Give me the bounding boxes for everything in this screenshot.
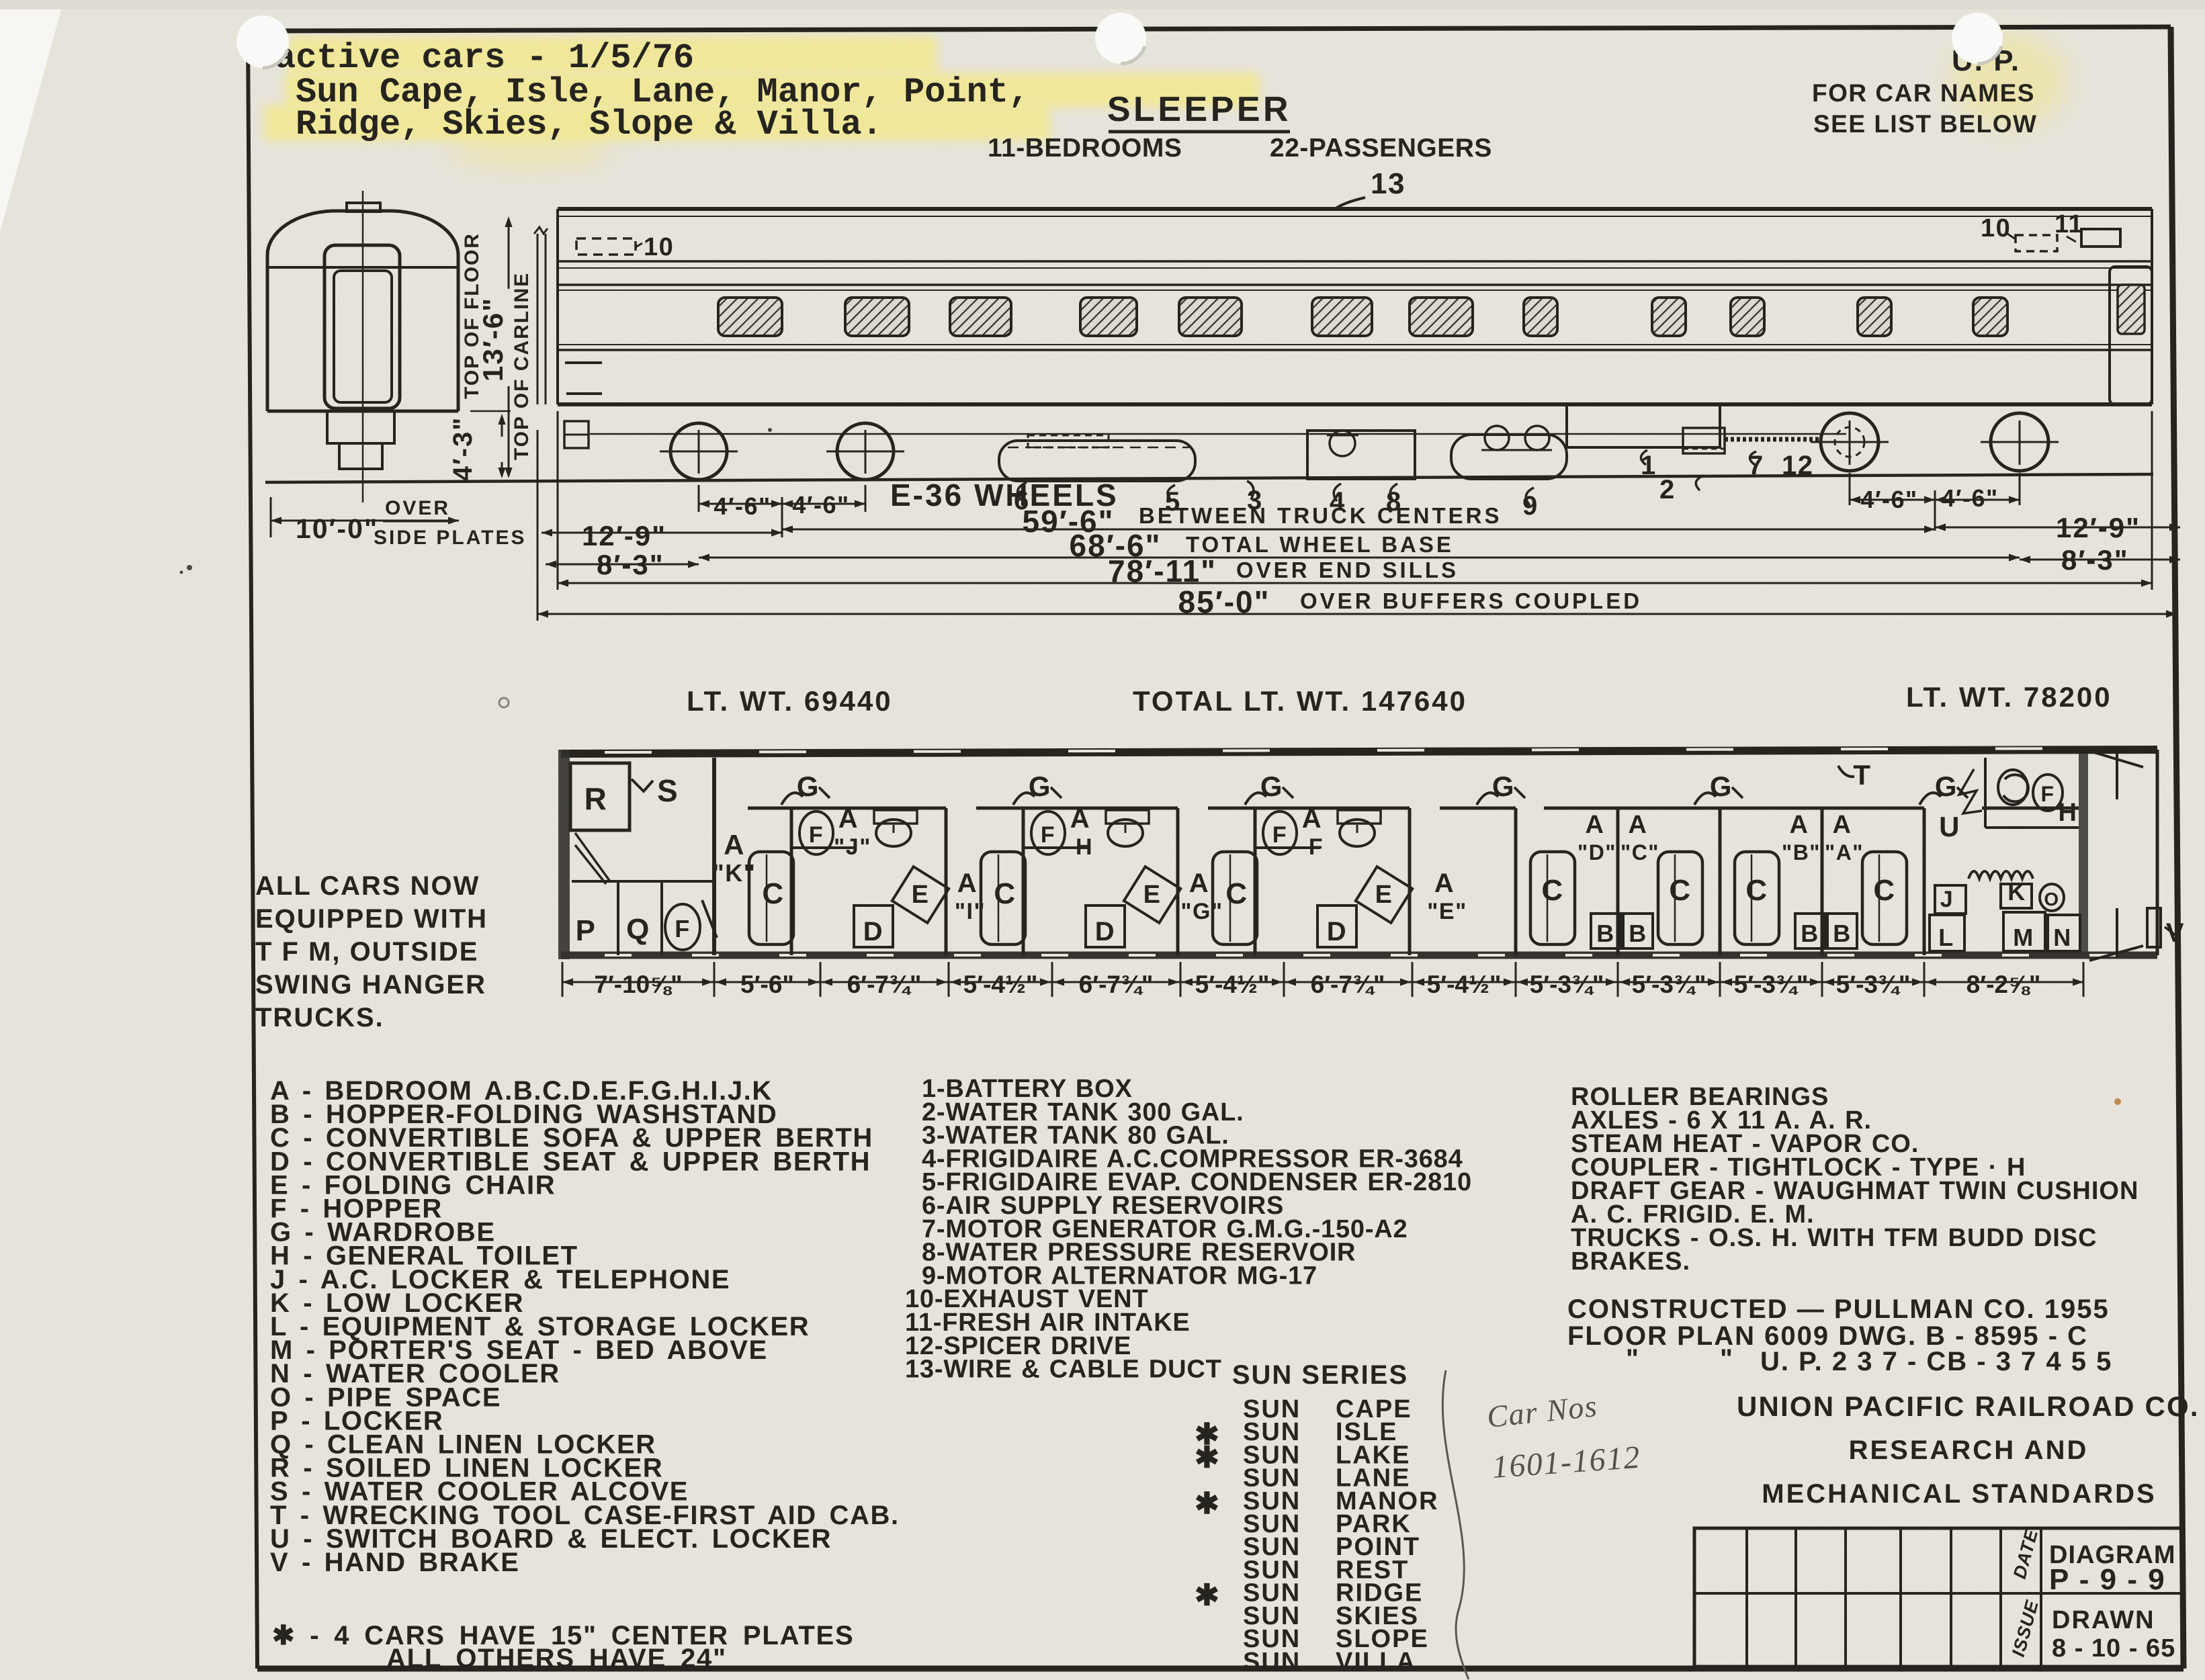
svg-text:A: A xyxy=(1629,811,1648,839)
svg-text:TOP OF CARLINE: TOP OF CARLINE xyxy=(511,272,533,460)
svg-text:A: A xyxy=(1189,869,1209,898)
svg-text:E: E xyxy=(1143,881,1162,909)
svg-text:13′-6": 13′-6" xyxy=(477,297,509,382)
svg-text:C: C xyxy=(1873,874,1895,907)
svg-text:A: A xyxy=(724,829,745,860)
svg-text:"G": "G" xyxy=(1180,899,1223,924)
svg-text:11: 11 xyxy=(2055,210,2083,238)
svg-text:2: 2 xyxy=(1659,475,1676,504)
svg-text:5′-3¾": 5′-3¾" xyxy=(1836,971,1911,998)
svg-text:22-PASSENGERS: 22-PASSENGERS xyxy=(1270,134,1492,163)
svg-text:10′-0": 10′-0" xyxy=(296,513,378,544)
svg-text:": " xyxy=(1626,1344,1639,1374)
svg-text:4′-6": 4′-6" xyxy=(792,491,849,519)
svg-text:12′-9": 12′-9" xyxy=(2056,512,2141,543)
svg-text:G: G xyxy=(1492,770,1515,802)
svg-text:Q: Q xyxy=(626,913,650,946)
svg-text:U: U xyxy=(1939,811,1960,842)
svg-text:D: D xyxy=(1095,917,1115,946)
svg-text:E: E xyxy=(1375,881,1393,909)
svg-text:S: S xyxy=(657,773,679,808)
svg-text:✱: ✱ xyxy=(1195,1487,1220,1520)
svg-text:R: R xyxy=(585,781,608,816)
svg-text:H: H xyxy=(1076,834,1093,860)
svg-text:5′-4½": 5′-4½" xyxy=(963,971,1038,998)
svg-text:8′-3": 8′-3" xyxy=(597,549,664,580)
svg-text:TOTAL LT. WT. 147640: TOTAL LT. WT. 147640 xyxy=(1133,685,1467,717)
svg-text:SUN SERIES: SUN SERIES xyxy=(1232,1360,1408,1390)
svg-text:85′-0": 85′-0" xyxy=(1178,584,1270,619)
svg-text:5′-4½": 5′-4½" xyxy=(1427,971,1502,998)
svg-text:TOTAL WHEEL BASE: TOTAL WHEEL BASE xyxy=(1186,532,1454,557)
svg-text:": " xyxy=(1720,1344,1733,1374)
svg-text:A: A xyxy=(1070,804,1090,834)
svg-text:V - HAND BRAKE: V - HAND BRAKE xyxy=(270,1548,520,1577)
svg-text:P - 9 - 9: P - 9 - 9 xyxy=(2049,1563,2166,1596)
svg-text:8′-3": 8′-3" xyxy=(2061,544,2129,576)
svg-text:F: F xyxy=(1272,822,1287,848)
svg-text:A: A xyxy=(1790,811,1809,839)
svg-text:B: B xyxy=(1801,920,1819,947)
svg-text:ALL OTHERS HAVE 24": ALL OTHERS HAVE 24" xyxy=(386,1644,727,1673)
svg-text:G: G xyxy=(1710,770,1733,802)
svg-text:ALL CARS NOW: ALL CARS NOW xyxy=(255,871,480,901)
svg-text:8 - 10 - 65: 8 - 10 - 65 xyxy=(2052,1634,2175,1663)
svg-text:E: E xyxy=(912,881,930,909)
svg-text:C: C xyxy=(762,877,784,910)
svg-text:B: B xyxy=(1596,920,1615,947)
svg-text:B: B xyxy=(1629,920,1647,947)
svg-text:✱: ✱ xyxy=(1195,1441,1220,1474)
svg-text:"E": "E" xyxy=(1427,899,1467,924)
svg-text:F: F xyxy=(675,915,691,942)
svg-text:A: A xyxy=(838,804,859,834)
svg-text:SUN: SUN xyxy=(1243,1648,1301,1676)
svg-text:6′-7¾": 6′-7¾" xyxy=(1079,971,1154,998)
svg-text:SEE LIST BELOW: SEE LIST BELOW xyxy=(1813,110,2037,138)
svg-text:78′-11": 78′-11" xyxy=(1108,554,1217,588)
svg-text:LT. WT. 78200: LT. WT. 78200 xyxy=(1906,681,2112,713)
svg-text:G: G xyxy=(797,770,820,802)
svg-text:✱: ✱ xyxy=(1195,1579,1220,1612)
svg-text:A: A xyxy=(1302,804,1322,834)
svg-text:4′-6": 4′-6" xyxy=(1860,486,1917,513)
svg-text:6′-7¾": 6′-7¾" xyxy=(847,971,922,998)
svg-text:11-BEDROOMS: 11-BEDROOMS xyxy=(988,134,1182,163)
svg-text:4′-6": 4′-6" xyxy=(714,492,771,520)
svg-text:Ridge, Skies, Slope & Villa.: Ridge, Skies, Slope & Villa. xyxy=(296,105,883,144)
svg-text:"A": "A" xyxy=(1825,840,1864,865)
svg-text:EQUIPPED WITH: EQUIPPED WITH xyxy=(255,904,488,934)
svg-text:C: C xyxy=(1541,874,1563,907)
svg-text:6′-7¾": 6′-7¾" xyxy=(1311,971,1385,998)
svg-text:UNION PACIFIC RAILROAD CO.: UNION PACIFIC RAILROAD CO. xyxy=(1737,1390,2200,1422)
svg-text:T F M, OUTSIDE: T F M, OUTSIDE xyxy=(255,937,478,967)
svg-text:A: A xyxy=(957,869,978,898)
svg-text:CONSTRUCTED — PULLMAN CO. 195: CONSTRUCTED — PULLMAN CO. 1955 xyxy=(1567,1294,2110,1324)
svg-text:L: L xyxy=(1938,924,1954,951)
svg-text:P: P xyxy=(576,914,597,947)
svg-text:4′-3": 4′-3" xyxy=(448,416,478,481)
svg-text:H: H xyxy=(2059,799,2078,827)
svg-text:A: A xyxy=(1586,811,1605,839)
svg-text:4′-6": 4′-6" xyxy=(1941,484,1998,512)
svg-text:G: G xyxy=(1260,770,1283,802)
svg-text:"D": "D" xyxy=(1577,840,1616,865)
svg-text:13-WIRE & CABLE DUCT: 13-WIRE & CABLE DUCT xyxy=(905,1356,1222,1384)
svg-text:5′-4½": 5′-4½" xyxy=(1195,971,1270,998)
svg-text:13: 13 xyxy=(1371,167,1406,200)
svg-text:F: F xyxy=(1041,822,1055,848)
svg-text:TRUCKS.: TRUCKS. xyxy=(255,1003,384,1032)
svg-text:A: A xyxy=(1434,869,1455,898)
svg-text:OVER: OVER xyxy=(385,497,450,519)
svg-text:"J": "J" xyxy=(834,834,871,860)
svg-text:O: O xyxy=(2044,889,2059,910)
svg-text:DRAWN: DRAWN xyxy=(2052,1606,2155,1634)
svg-text:FOR CAR NAMES: FOR CAR NAMES xyxy=(1812,79,2035,107)
svg-text:V: V xyxy=(2166,918,2185,948)
svg-text:8′-2⅝": 8′-2⅝" xyxy=(1966,971,2041,998)
svg-text:5′-6": 5′-6" xyxy=(740,971,794,998)
svg-text:OVER BUFFERS COUPLED: OVER BUFFERS COUPLED xyxy=(1300,588,1642,613)
svg-text:5′-3¾": 5′-3¾" xyxy=(1734,971,1809,998)
svg-text:MECHANICAL STANDARDS: MECHANICAL STANDARDS xyxy=(1762,1479,2156,1509)
svg-text:D: D xyxy=(863,917,883,946)
svg-text:A: A xyxy=(1833,811,1852,839)
svg-text:M: M xyxy=(2013,924,2034,951)
svg-text:D: D xyxy=(1327,917,1347,946)
svg-text:VILLA: VILLA xyxy=(1336,1648,1416,1676)
svg-text:OVER END SILLS: OVER END SILLS xyxy=(1236,558,1459,582)
svg-text:C: C xyxy=(994,877,1016,910)
svg-text:K: K xyxy=(2007,878,2026,905)
svg-text:"C": "C" xyxy=(1620,840,1659,865)
svg-text:T: T xyxy=(1853,759,1871,791)
svg-text:C: C xyxy=(1745,874,1768,907)
svg-text:"B": "B" xyxy=(1782,840,1821,865)
svg-text:BRAKES.: BRAKES. xyxy=(1571,1247,1690,1276)
svg-text:BETWEEN TRUCK CENTERS: BETWEEN TRUCK CENTERS xyxy=(1139,503,1502,528)
svg-text:F: F xyxy=(1309,834,1324,860)
svg-text:10: 10 xyxy=(644,233,674,261)
svg-text:5′-3¾": 5′-3¾" xyxy=(1632,971,1706,998)
svg-text:F: F xyxy=(2040,782,2055,806)
svg-text:J: J xyxy=(1940,887,1954,912)
svg-text:RESEARCH AND: RESEARCH AND xyxy=(1849,1435,2089,1465)
svg-text:SIDE PLATES: SIDE PLATES xyxy=(374,527,526,549)
svg-text:SWING HANGER: SWING HANGER xyxy=(255,970,486,1000)
svg-text:9: 9 xyxy=(1522,491,1539,521)
svg-text:"I": "I" xyxy=(955,899,986,924)
svg-text:10: 10 xyxy=(1981,214,2011,242)
svg-text:C: C xyxy=(1225,877,1248,910)
svg-text:C: C xyxy=(1669,874,1691,907)
svg-text:U. P. 2 3 7 - CB - 3 7 4 5 5: U. P. 2 3 7 - CB - 3 7 4 5 5 xyxy=(1760,1347,2112,1376)
svg-text:G: G xyxy=(1029,770,1051,802)
svg-text:SLEEPER: SLEEPER xyxy=(1107,90,1291,129)
svg-text:LT. WT. 69440: LT. WT. 69440 xyxy=(687,685,893,717)
svg-text:5′-3¾": 5′-3¾" xyxy=(1530,971,1604,998)
svg-text:N: N xyxy=(2053,924,2072,951)
svg-text:12′-9": 12′-9" xyxy=(582,520,666,551)
svg-text:B: B xyxy=(1833,920,1852,947)
svg-text:G: G xyxy=(1935,770,1958,802)
svg-text:7′-10⅝": 7′-10⅝" xyxy=(594,971,682,998)
svg-text:F: F xyxy=(809,822,824,848)
